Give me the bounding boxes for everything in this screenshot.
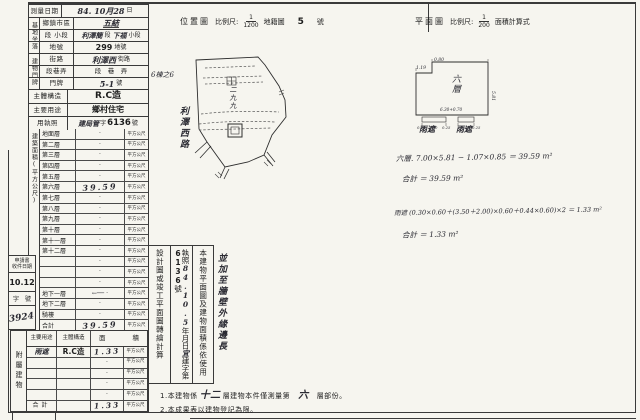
floor-row-5: 第五層·平方公尺 — [40, 171, 148, 182]
area-unit: 平方公尺 — [124, 278, 148, 288]
floor-row-ground: 地面層·平方公尺 — [40, 129, 148, 140]
handwritten-wall-note: 並加至牆壁外緣邊長 — [216, 253, 225, 363]
apply-number-value: 3924 — [9, 311, 35, 324]
cut-cell-line-1 — [12, 413, 13, 420]
area-unit: 平方公尺 — [124, 235, 148, 245]
door-number-extra: 6棟之6 — [151, 70, 174, 80]
area-unit: 平方公尺 — [123, 401, 147, 411]
area-unit: 平方公尺 — [123, 347, 147, 357]
floor-plan-title: 平面圖 — [415, 16, 445, 27]
floor-row-12: 第十二層·平方公尺 — [40, 246, 148, 257]
note-2: 2.本成果表以建物登記為限。 — [160, 405, 630, 415]
district-label: 鄉鎮市區 — [40, 18, 74, 29]
license-number: 6136 — [107, 119, 131, 128]
svg-text:1.19: 1.19 — [416, 65, 426, 71]
note-1-floor-hand: 六 — [298, 386, 309, 401]
calc-line-canopy: 雨遮 (0.30×0.60＋(3.50＋2.00)×0.60＋0.44×0.60… — [394, 203, 636, 217]
section-label: 段 小段 — [40, 30, 74, 41]
floor-row-blank-1: ·平方公尺 — [40, 257, 148, 268]
svg-text:0.25: 0.25 — [472, 125, 481, 130]
annex-row-blank: · 平方公尺 — [27, 358, 147, 369]
area-unit: 平方公尺 — [124, 193, 148, 203]
street-value: 利澤西 — [92, 56, 116, 64]
survey-date-value: 84. 10月28 — [78, 7, 125, 15]
area-unit: 平方公尺 — [124, 246, 148, 256]
survey-tick-marks — [215, 90, 284, 178]
area-unit: 平方公尺 — [124, 204, 148, 214]
usage-value: 鄉村住宅 — [92, 106, 124, 114]
annex-header-usage: 主要用途 — [27, 331, 57, 346]
area-unit: 平方公尺 — [124, 150, 148, 160]
application-receipt-box: 申請書 收件日期 10.12 字 號 3924 — [8, 255, 36, 330]
lane-label: 段巷弄 — [40, 66, 74, 77]
floor-row-arcade: 騎樓·平方公尺 — [40, 310, 148, 321]
street-label: 街路 — [40, 54, 74, 65]
area-unit: 平方公尺 — [124, 182, 148, 192]
annex-header-area-right: 積 — [133, 335, 140, 342]
survey-date-label: 測量日期 — [28, 5, 62, 17]
district-value: 五結 — [103, 19, 119, 28]
area-unit: 平方公尺 — [124, 288, 148, 298]
floor-row-3: 第三層·平方公尺 — [40, 150, 148, 161]
floor-6-area-value: 39.59 — [76, 181, 124, 193]
floor-row-7: 第七層·平方公尺 — [40, 193, 148, 204]
annex-group-label: 附屬建物 — [15, 351, 22, 391]
floor-row-b1: 地下一層←──·平方公尺 — [40, 288, 148, 299]
parcel-number: 299 — [96, 44, 113, 52]
cadastral-sheet-suffix: 號 — [317, 17, 324, 27]
number-label: 門牌 — [40, 78, 74, 89]
area-unit: 平方公尺 — [124, 214, 148, 224]
plan-scale-fraction: 1200 — [478, 14, 489, 29]
floor-row-11: 第十一層·平方公尺 — [40, 235, 148, 246]
statement-license-suffix: 號 — [173, 285, 182, 293]
area-unit: 平方公尺 — [124, 299, 148, 309]
floor-row-blank-3: ·平方公尺 — [40, 278, 148, 289]
survey-date-row: 測量日期 84. 10月28 日 — [28, 5, 148, 18]
plan-scale-label: 比例尺: — [450, 17, 473, 27]
lane-row: 段巷弄 段 巷 弄 — [28, 66, 148, 78]
license-agency: 建局管 — [78, 120, 99, 127]
annex-row-blank: · 平方公尺 — [27, 369, 147, 380]
number-value: 5-1 — [100, 80, 114, 88]
annex-row-blank: · 平方公尺 — [27, 390, 147, 401]
section-suffix-2: 小段 — [129, 33, 141, 39]
floor-row-4: 第四層·平方公尺 — [40, 161, 148, 172]
svg-text:6.30+0.70: 6.30+0.70 — [440, 107, 462, 112]
survey-date-suffix: 日 — [126, 8, 132, 14]
usage-row: 主要用途 鄉村住宅 — [28, 104, 148, 117]
annex-row-canopy: 雨遮 R.C造 1.33 平方公尺 — [27, 347, 147, 358]
subject-building-mark — [228, 124, 242, 137]
annex-building-table: 附屬建物 主要用途 主體構造 面 積 雨遮 R.C造 1.33 平方公尺 · 平 — [10, 330, 148, 412]
location-scale-fraction: 11200 — [243, 14, 258, 29]
area-unit: 平方公尺 — [123, 358, 147, 368]
basement-hand-arrow: ←── — [92, 290, 104, 297]
street-suffix: 街路 — [118, 57, 130, 63]
area-unit: 平方公尺 — [124, 267, 148, 277]
annex-header-area-left: 面 — [99, 335, 106, 342]
parcel-scribbles — [199, 66, 279, 130]
area-unit: 平方公尺 — [124, 171, 148, 181]
map-parcel-number: 二九九 — [229, 86, 236, 110]
statement-license-agency: 宜 — [181, 350, 190, 358]
section-value-2: 下福 — [113, 32, 127, 39]
area-unit: 平方公尺 — [124, 320, 148, 330]
floor-row-10: 第十層·平方公尺 — [40, 225, 148, 236]
building-info-table: 測量日期 84. 10月28 日 基地坐落 鄉鎮市區 五結 段 小段 利澤簡 段… — [28, 4, 148, 129]
section-suffix-1: 段 — [104, 33, 110, 39]
cut-cell-line-2 — [55, 413, 56, 420]
floor-plan-header: 平面圖 比例尺: 1200 面積計算式 — [415, 14, 530, 29]
parcel-suffix: 地號 — [114, 45, 126, 51]
annex-row-total: 合計 1.33 平方公尺 — [27, 401, 147, 411]
canopy-label-2: 雨遮 — [456, 124, 472, 135]
cadastral-sheet-number: 5 — [298, 17, 304, 27]
svg-text:0.80: 0.80 — [434, 57, 444, 63]
canopy-label-1: 雨遮 — [419, 124, 435, 135]
lane-value: 段 巷 弄 — [74, 66, 148, 77]
road-stubs — [195, 142, 275, 179]
location-scale-label: 比例尺: — [215, 17, 238, 27]
apply-date: 10.12 — [9, 278, 34, 287]
number-suffix: 號 — [116, 81, 122, 87]
parcel-label: 地號 — [40, 42, 74, 53]
location-map-drawing — [175, 54, 293, 182]
floor-row-6: 第六層39.59平方公尺 — [40, 182, 148, 193]
statement-license-ymd: 年月日 — [181, 327, 190, 350]
site-boundary — [196, 57, 286, 167]
license-mid: 字 — [100, 121, 106, 127]
cadastral-map-label: 地籍圖 — [264, 17, 285, 27]
parcel-row: 地號 299 地號 — [28, 42, 148, 54]
statement-block: 本建物平面圖及建物面積係依使用 執照84.10.5年月日宜建字第6136號 設計… — [148, 245, 214, 384]
structure-row: 主體構造 R.C造 — [28, 90, 148, 104]
area-calc-label: 面積計算式 — [495, 17, 530, 27]
plan-floor-label: 六層 — [450, 74, 459, 94]
license-suffix: 號 — [132, 121, 138, 127]
area-unit: 平方公尺 — [124, 161, 148, 171]
structure-value: R.C造 — [95, 92, 121, 101]
statement-license-mid: 建字第 — [181, 357, 190, 380]
statement-license-number: 6136 — [173, 249, 182, 285]
temple-mark — [227, 77, 236, 85]
survey-result-sheet: 測量日期 84. 10月28 日 基地坐落 鄉鎮市區 五結 段 小段 利澤簡 段… — [0, 0, 640, 420]
floor-area-table: 建築面積(平方公尺) 地面層·平方公尺 第二層·平方公尺 第三層·平方公尺 第四… — [28, 129, 148, 330]
area-unit: 平方公尺 — [124, 140, 148, 150]
floor-row-9: 第九層·平方公尺 — [40, 214, 148, 225]
cut-row-line — [190, 418, 636, 419]
location-map-header: 位置圖 比例尺: 11200 地籍圖 5 號 — [180, 14, 324, 29]
calc-line-floor6: 六層. 7.00×5.81 − 1.07×0.85 ＝ 39.59 m² — [396, 149, 634, 164]
area-unit: 平方公尺 — [124, 257, 148, 267]
canopy-rect-1 — [422, 117, 446, 122]
floor-area-group-label: 建築面積(平方公尺) — [31, 133, 37, 255]
district-row: 鄉鎮市區 五結 — [28, 18, 148, 30]
floor-row-b2: 地下二層·平方公尺 — [40, 299, 148, 310]
number-row: 門牌 5-1 號 — [28, 78, 148, 90]
svg-text:0.25: 0.25 — [442, 125, 451, 130]
statement-line-3: 設計圖或竣工平面圖轉繪計算 — [156, 249, 164, 383]
location-map-title: 位置圖 — [180, 16, 210, 27]
calc-line-total-2: 合計 ＝ 1.33 m² — [402, 229, 459, 241]
area-unit: 平方公尺 — [123, 379, 147, 389]
floor-row-2: 第二層·平方公尺 — [40, 140, 148, 151]
svg-text:5.81: 5.81 — [490, 91, 496, 101]
street-row: 街路 利澤西 街路 — [28, 54, 148, 66]
area-unit: 平方公尺 — [123, 390, 147, 400]
road-name-label: 利澤西路 — [178, 106, 187, 150]
floor-row-total: 合計39.59平方公尺 — [40, 320, 148, 330]
statement-line-1: 本建物平面圖及建物面積係依使用 — [199, 249, 207, 383]
apply-label-2: 收件日期 — [12, 264, 32, 270]
area-unit: 平方公尺 — [124, 310, 148, 320]
apply-number-label: 字 號 — [13, 294, 31, 303]
note-1: 1.本建物係 十二 層建物本件僅測量第 六 層部份。 — [160, 386, 630, 401]
section-value-1: 利澤簡 — [81, 32, 102, 39]
floor-row-8: 第八層·平方公尺 — [40, 204, 148, 215]
usage-label: 主要用途 — [28, 104, 68, 116]
area-unit: 平方公尺 — [123, 369, 147, 379]
area-unit: 平方公尺 — [124, 225, 148, 235]
annex-row-blank: · 平方公尺 — [27, 379, 147, 390]
section-row: 段 小段 利澤簡 段 下福 小段 — [28, 30, 148, 42]
area-unit: 平方公尺 — [124, 129, 148, 139]
floor-row-blank-2: ·平方公尺 — [40, 267, 148, 278]
note-1-floors-hand: 十二 — [200, 386, 221, 401]
canopy-rect-2 — [458, 117, 474, 122]
structure-label: 主體構造 — [28, 90, 68, 103]
annex-header-structure: 主體構造 — [57, 331, 91, 346]
calc-line-total-1: 合計 ＝ 39.59 m² — [402, 172, 463, 184]
